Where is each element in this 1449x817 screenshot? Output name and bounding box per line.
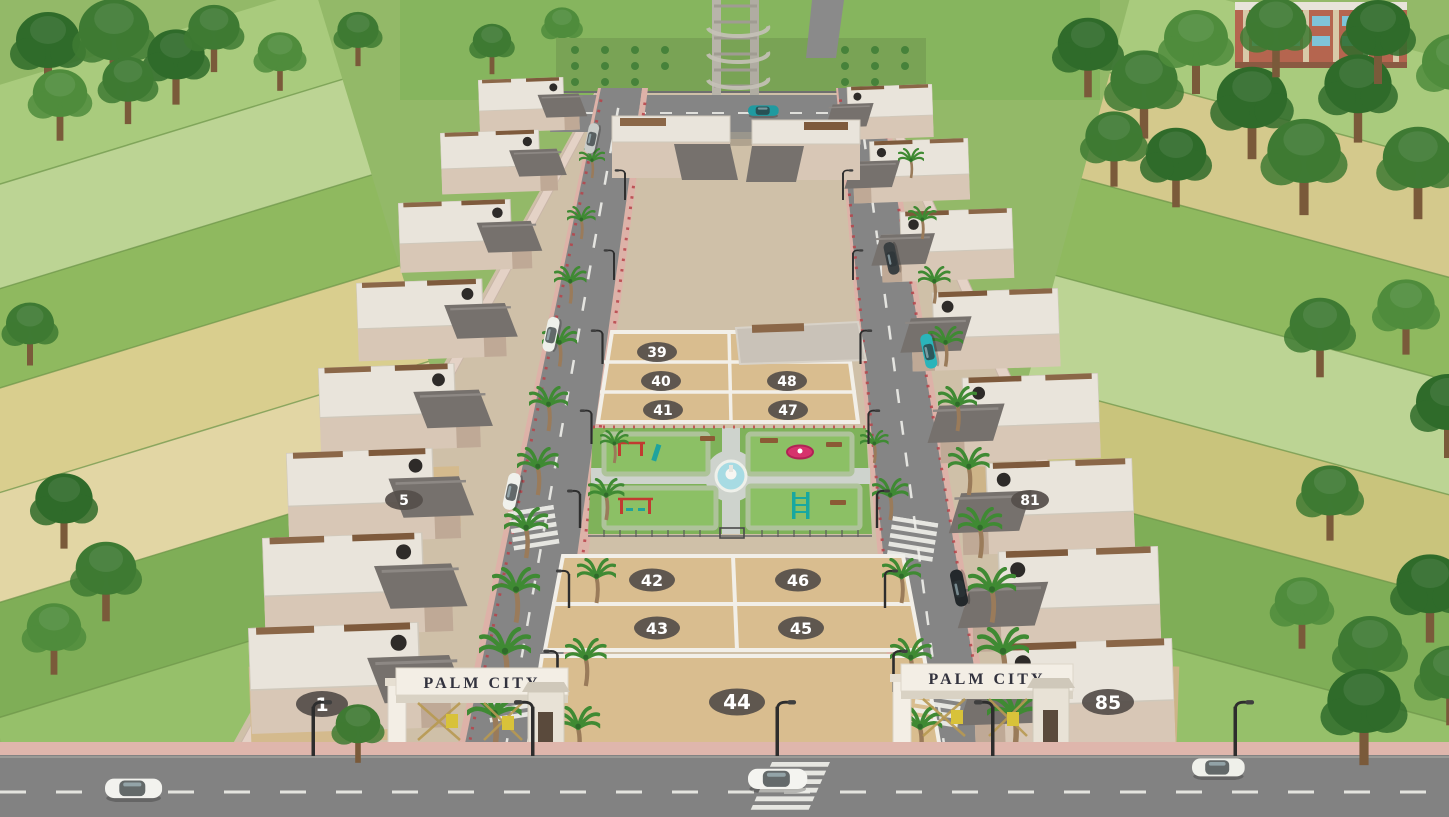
sidewalk	[0, 742, 1449, 757]
car-white-sedan	[105, 779, 162, 804]
car-white-suv	[748, 769, 807, 795]
fountain	[716, 461, 746, 491]
svg-text:81: 81	[1020, 493, 1039, 509]
svg-text:85: 85	[1095, 692, 1121, 714]
svg-text:40: 40	[651, 374, 671, 390]
svg-text:43: 43	[646, 619, 668, 638]
svg-text:1: 1	[315, 694, 328, 716]
svg-text:42: 42	[641, 571, 663, 590]
plot-marker: 45	[778, 617, 824, 640]
plot-marker: 81	[1011, 490, 1049, 510]
plot-marker: 42	[629, 569, 675, 592]
svg-text:46: 46	[787, 571, 809, 590]
svg-text:44: 44	[723, 690, 751, 714]
svg-text:39: 39	[647, 345, 666, 361]
plot-marker: 40	[641, 371, 681, 391]
gate-sign-label: PALM CITY	[424, 675, 541, 692]
plot-marker: 43	[634, 617, 680, 640]
svg-text:45: 45	[790, 619, 812, 638]
plot-marker: 39	[637, 342, 677, 362]
plot-marker: 41	[643, 400, 683, 420]
playground-carousel	[787, 446, 813, 459]
central-park	[588, 427, 872, 538]
plot-marker: 46	[775, 569, 821, 592]
car-white	[1192, 758, 1245, 781]
svg-text:5: 5	[399, 493, 409, 509]
plot-upper-block	[598, 322, 866, 422]
svg-text:47: 47	[778, 403, 797, 419]
aerial-site-render: 39 40 48 41 47 42 46 43 45 44 1 85 5 81 …	[0, 0, 1449, 817]
plot-marker: 5	[385, 490, 423, 510]
plot-marker: 48	[767, 371, 807, 391]
rear-park-orchard	[556, 38, 926, 92]
svg-text:41: 41	[653, 403, 672, 419]
car-teal-small	[748, 105, 779, 118]
plot-marker: 47	[768, 400, 808, 420]
svg-text:48: 48	[777, 374, 796, 390]
plot-marker: 44	[709, 689, 765, 716]
gate-sign-label: PALM CITY	[929, 671, 1046, 688]
plot-marker: 85	[1082, 689, 1134, 715]
